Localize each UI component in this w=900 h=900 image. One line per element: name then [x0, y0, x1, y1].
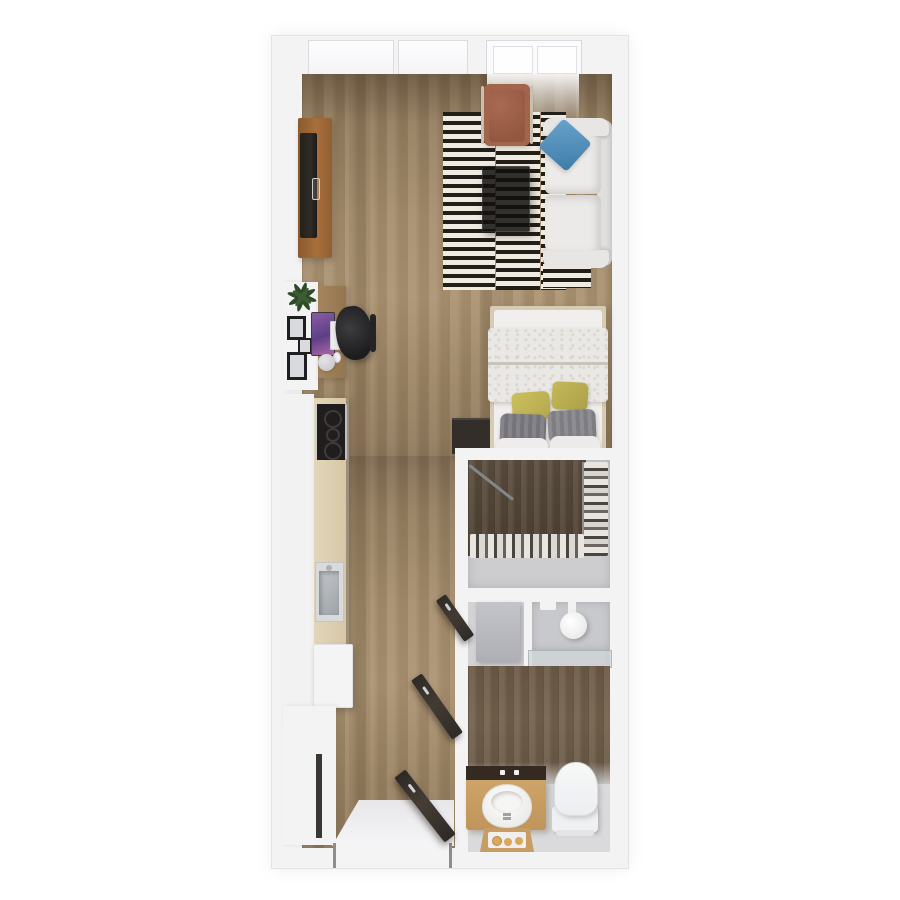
hanging-clothes-right [584, 462, 608, 556]
cooktop-burner-2 [326, 428, 340, 442]
closet-door-handle [444, 603, 451, 611]
bathroom-room [468, 602, 610, 852]
refrigerator [313, 644, 353, 708]
tv-bracket [312, 178, 320, 200]
sofa-armrest-bottom [543, 250, 609, 268]
sink-basin [319, 571, 339, 615]
window-pane-left-2 [398, 40, 468, 76]
sink-bowl [491, 791, 523, 813]
armchair [484, 84, 530, 146]
houseplant [284, 278, 320, 316]
sofa-seat-cushion-2 [545, 195, 601, 251]
window-pane-right-1 [493, 46, 533, 74]
bathroom-door-handle [422, 686, 430, 695]
washer [476, 602, 520, 662]
picture-frame-3 [287, 352, 307, 380]
utility-cabinet [283, 706, 336, 845]
bed [490, 306, 606, 462]
vanity-faucet [503, 813, 511, 816]
entry-door-handle [408, 783, 417, 793]
office-chair [330, 300, 382, 372]
shower-ceiling-box [540, 602, 556, 610]
sink-faucet [326, 565, 332, 571]
shower [532, 602, 610, 650]
cooktop-burner-3 [324, 442, 342, 460]
picture-frame-1 [287, 316, 306, 340]
cooktop [315, 404, 347, 460]
pillow-yellow-2 [551, 381, 588, 411]
armchair-frame-right [530, 86, 533, 144]
duvet-fold-line [488, 362, 608, 365]
coffee-table [482, 166, 530, 232]
toilet-bowl-lid [554, 762, 598, 816]
kitchen-cabinet-run [283, 394, 314, 722]
armchair-cushion [489, 90, 525, 142]
armchair-frame-left [481, 86, 484, 144]
cooktop-burner-1 [324, 410, 342, 428]
window-pane-right-2 [537, 46, 577, 74]
closet-room [468, 460, 610, 588]
kitchen-sink [315, 562, 344, 622]
utility-cabinet-gap [316, 754, 322, 838]
duvet [488, 328, 608, 402]
office-chair-armrest [370, 314, 376, 352]
rain-shower-head [560, 612, 587, 639]
vanity-sink [482, 784, 532, 828]
floor-plan-canvas [0, 0, 900, 900]
toilet-foot [556, 830, 594, 836]
hanging-clothes-bottom [470, 534, 584, 558]
vanity-backsplash [466, 766, 546, 780]
window-pane-left-1 [308, 40, 394, 76]
entry-door-frame-left [333, 843, 336, 868]
entry-doorway-gap [336, 843, 450, 868]
entry-door-frame-right [449, 843, 452, 868]
toiletry-bottles [492, 836, 502, 846]
soap-items [500, 770, 505, 775]
